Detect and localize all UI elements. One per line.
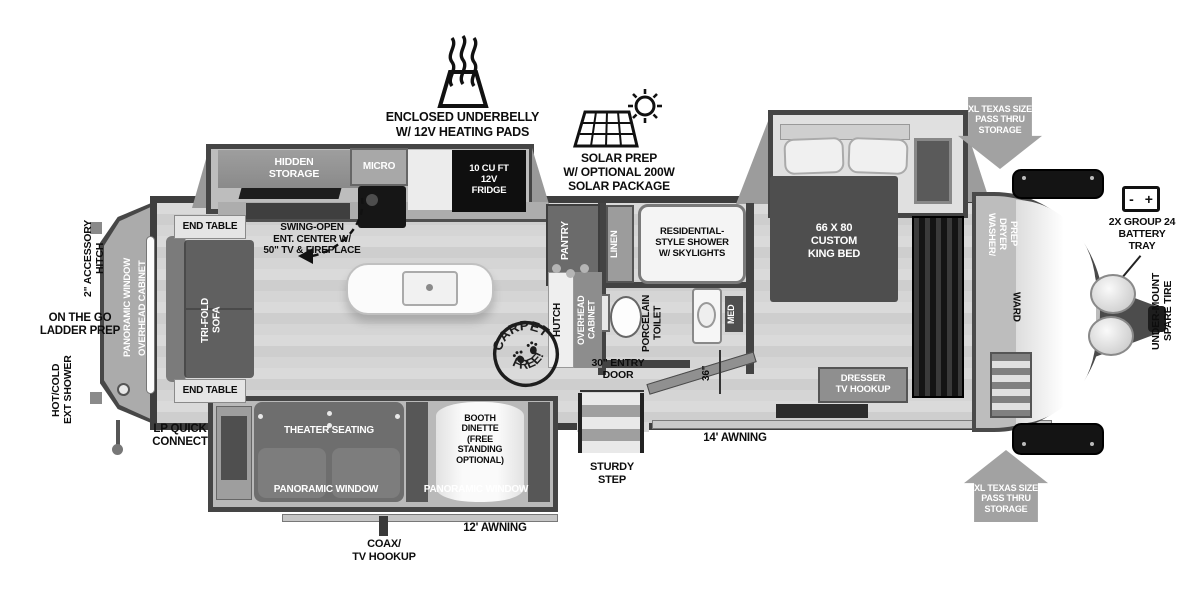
propane-tank-1	[1090, 274, 1136, 314]
door-screw	[1090, 176, 1094, 180]
rear-bumper-bottom	[90, 392, 102, 404]
end-table-bottom-label: END TABLE	[174, 385, 246, 397]
rear-panoramic-window-label: PANORAMIC WINDOW	[122, 244, 137, 372]
pantry-label: PANTRY	[560, 210, 584, 272]
theater-seating-label: THEATER SEATING	[258, 425, 400, 437]
coax-label: COAX/ TV HOOKUP	[330, 538, 438, 564]
cupholder	[258, 414, 263, 419]
entry-door-dim-line	[580, 390, 644, 392]
booth-dinette-label: BOOTH DINETTE (FREE STANDING OPTIONAL)	[438, 413, 522, 465]
kitchen-counter-white	[408, 150, 452, 210]
island-faucet	[426, 284, 433, 291]
underbelly-label: ENCLOSED UNDERBELLY W/ 12V HEATING PADS	[385, 110, 540, 139]
theater-window-label: PANORAMIC WINDOW	[250, 484, 402, 496]
passthru-bottom-label: XL TEXAS SIZE PASS THRU STORAGE	[964, 483, 1048, 514]
toilet-bowl	[610, 296, 642, 338]
swing-open-arrow-icon	[296, 194, 370, 266]
med-label: MED	[726, 299, 742, 329]
king-bed-label: 66 X 80 CUSTOM KING BED	[776, 222, 892, 260]
bedroom-window	[914, 138, 952, 204]
pillow-left	[783, 137, 844, 175]
trifold-sofa-label: TRI-FOLD SOFA	[200, 274, 228, 366]
coax-connector-icon	[379, 516, 388, 536]
rv-floorplan: ENCLOSED UNDERBELLY W/ 12V HEATING PADS …	[0, 0, 1200, 600]
hidden-storage-label: HIDDEN STORAGE	[218, 156, 370, 180]
step-1	[578, 393, 644, 405]
rear-overhead-cabinet-label: OVERHEAD CABINET	[137, 244, 152, 372]
door-screw	[1090, 442, 1094, 446]
hall-width-label: 36"	[701, 352, 717, 394]
pillow-right	[847, 137, 908, 175]
passthru-door-bottom	[1012, 423, 1104, 455]
battery-tray-label: 2X GROUP 24 BATTERY TRAY	[1098, 216, 1186, 253]
step-4	[578, 429, 644, 441]
ext-shower-label: HOT/COLD EXT SHOWER	[50, 348, 84, 432]
battery-icon: - +	[1122, 186, 1160, 212]
step-2	[578, 405, 644, 417]
lp-connect-icon	[116, 420, 120, 446]
battery-minus: -	[1129, 191, 1134, 207]
step-5	[578, 441, 644, 453]
spare-tire-label: UNDER-MOUNT SPARE TIRE	[1150, 260, 1186, 362]
hutch-overhead-label: OVERHEAD CABINET	[576, 279, 600, 361]
sofa-back	[166, 236, 186, 382]
fridge-label: 10 CU FT 12V FRIDGE	[452, 163, 526, 196]
battery-plus: +	[1145, 191, 1153, 207]
sturdy-step-label: STURDY STEP	[570, 461, 654, 487]
hutch-label: HUTCH	[552, 282, 570, 358]
hall-width-line	[719, 350, 721, 394]
toilet-label: PORCELAIN TOILET	[641, 276, 671, 370]
dresser-label: DRESSER TV HOOKUP	[818, 373, 908, 395]
passthru-door-top	[1012, 169, 1104, 199]
svg-text:FREE!: FREE!	[507, 346, 550, 377]
awning-12-bar	[282, 514, 558, 522]
step-3	[578, 417, 644, 429]
lp-connect-icon-ball	[112, 444, 123, 455]
end-table-top-label: END TABLE	[174, 221, 246, 233]
wardrobe-slatted	[912, 216, 964, 398]
accessory-hitch-label: 2" ACCESSORY HITCH	[82, 206, 114, 310]
propane-tank-2	[1088, 316, 1134, 356]
bedroom-slide-left-wedge	[736, 116, 770, 204]
dinette-window-label: PANORAMIC WINDOW	[402, 484, 550, 496]
ward-label: WARD	[1010, 281, 1026, 333]
linen-label: LINEN	[609, 216, 631, 272]
washer-dryer-prep-label: WASHER/ DRYER PREP	[986, 204, 1020, 264]
vanity-sink	[697, 302, 716, 328]
passthru-top-label: XL TEXAS SIZE PASS THRU STORAGE	[958, 104, 1042, 135]
awning-14-label: 14' AWNING	[690, 432, 780, 445]
front-cap-shelf	[990, 352, 1032, 418]
entry-steps	[578, 393, 644, 459]
bedroom-step-mat	[776, 404, 868, 418]
cupholder	[327, 411, 332, 416]
microwave-label: MICRO	[350, 161, 408, 173]
awning-12-label: 12' AWNING	[440, 522, 550, 535]
bath-wall-right	[746, 203, 754, 374]
solar-prep-label: SOLAR PREP W/ OPTIONAL 200W SOLAR PACKAG…	[558, 152, 680, 194]
shower-label: RESIDENTIAL- STYLE SHOWER W/ SKYLIGHTS	[640, 226, 744, 259]
heated-underbelly-icon	[424, 34, 502, 110]
door-screw	[1022, 442, 1026, 446]
solar-prep-icon	[573, 86, 669, 152]
cupholder	[395, 414, 400, 419]
ext-shower-knob	[117, 383, 130, 396]
door-screw	[1022, 176, 1026, 180]
lp-quick-connect-label: LP QUICK CONNECT	[130, 423, 230, 450]
entry-door-label: 30" ENTRY DOOR	[574, 357, 662, 381]
